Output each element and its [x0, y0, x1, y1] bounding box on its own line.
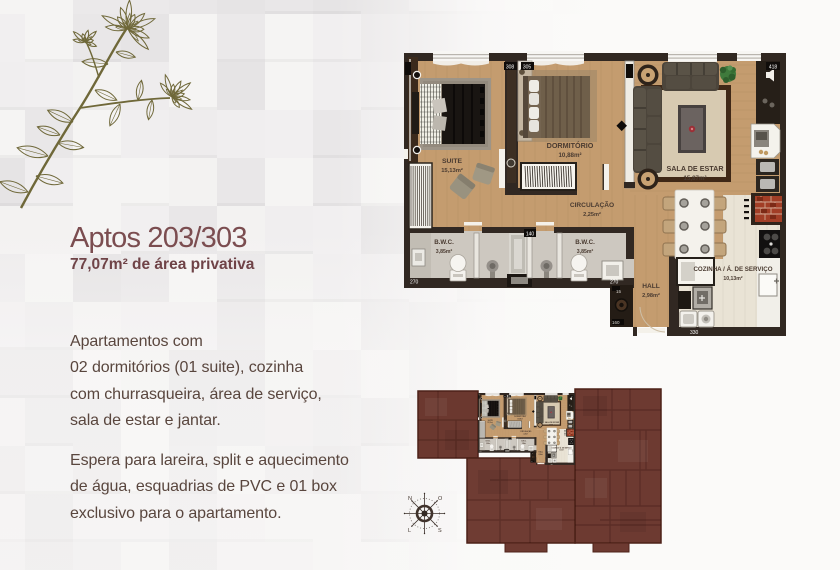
svg-text:B.W.C.: B.W.C.: [434, 239, 454, 246]
svg-text:305: 305: [523, 65, 532, 71]
svg-text:2,25m²: 2,25m²: [583, 211, 601, 218]
svg-text:CIRCULAÇÃO: CIRCULAÇÃO: [570, 200, 614, 209]
svg-text:140: 140: [526, 232, 535, 238]
svg-text:O: O: [438, 496, 443, 502]
svg-text:SALA DE ESTAR: SALA DE ESTAR: [666, 164, 724, 173]
svg-text:15,13m²: 15,13m²: [441, 167, 463, 174]
svg-text:160: 160: [612, 320, 620, 325]
svg-text:N: N: [408, 496, 412, 502]
svg-text:SUITE: SUITE: [442, 158, 462, 165]
svg-text:330: 330: [690, 330, 699, 336]
svg-text:2,98m²: 2,98m²: [642, 292, 660, 299]
svg-text:15: 15: [616, 289, 622, 294]
svg-text:418: 418: [769, 65, 778, 71]
svg-text:270: 270: [410, 280, 419, 286]
svg-text:S: S: [438, 528, 442, 534]
svg-text:270: 270: [610, 280, 619, 286]
svg-text:L: L: [408, 528, 411, 534]
svg-text:HALL: HALL: [642, 283, 660, 290]
svg-text:15,87m²: 15,87m²: [683, 175, 706, 182]
svg-text:3,85m²: 3,85m²: [436, 249, 453, 255]
svg-text:308: 308: [506, 65, 515, 71]
svg-text:DORMITÓRIO: DORMITÓRIO: [547, 141, 594, 150]
svg-text:10,88m²: 10,88m²: [558, 152, 581, 159]
svg-text:B.W.C.: B.W.C.: [575, 239, 595, 246]
svg-text:COZINHA / Á. DE SERVIÇO: COZINHA / Á. DE SERVIÇO: [693, 266, 772, 273]
svg-text:10,13m²: 10,13m²: [723, 276, 743, 282]
svg-text:3,85m²: 3,85m²: [577, 249, 594, 255]
